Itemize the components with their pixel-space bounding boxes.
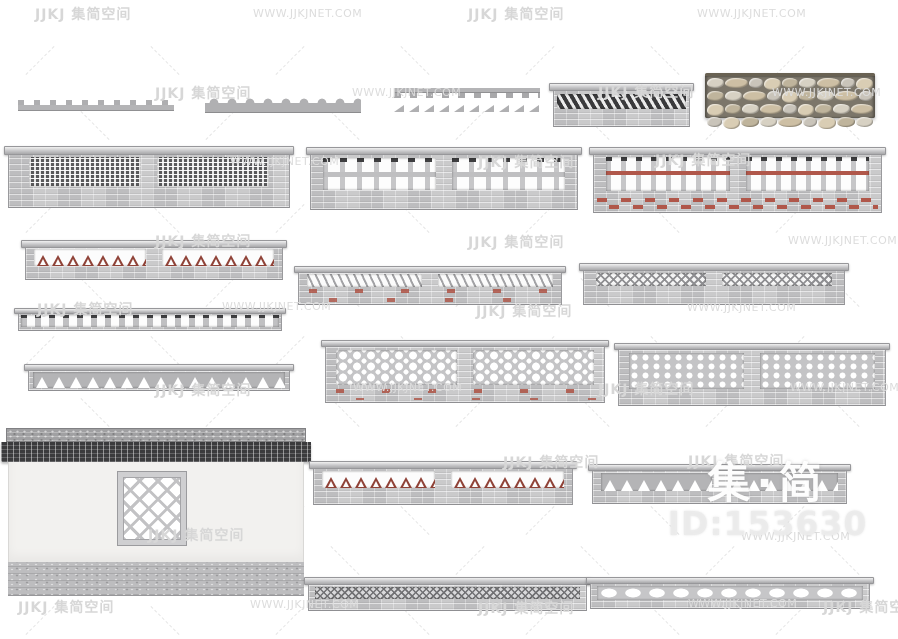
stone — [833, 104, 850, 114]
stone — [767, 91, 781, 101]
triangle-shape — [833, 480, 839, 491]
stone — [725, 91, 742, 101]
dashed-guide-line — [651, 506, 680, 535]
stone — [851, 104, 874, 114]
dashed-guide-line — [81, 278, 110, 307]
stone — [782, 78, 799, 88]
triangle-shape — [604, 480, 616, 491]
stone — [707, 91, 724, 101]
scroll-lattice-thin-railing — [308, 577, 587, 611]
red-chevron-panel — [162, 249, 274, 266]
railing-cap — [586, 577, 874, 584]
dashed-guide-line — [26, 204, 55, 233]
railing-body — [298, 273, 562, 305]
chevron-shape — [529, 477, 541, 488]
red-baluster-panel — [746, 157, 870, 191]
wall-body — [593, 155, 882, 213]
red-chevron-panel — [322, 471, 435, 488]
red-chevron-railing-small — [313, 461, 573, 505]
triangle-shape — [424, 105, 434, 112]
ridge-bar — [205, 103, 361, 113]
coping-bar — [18, 105, 174, 111]
railing-cap — [588, 464, 851, 471]
chevron-shape — [225, 255, 237, 266]
stone — [749, 78, 763, 88]
triangle-shape — [240, 377, 252, 388]
chevron-shape — [270, 255, 274, 266]
railing-cap — [24, 364, 294, 371]
dashed-guide-line — [151, 204, 180, 233]
railing-cap — [21, 240, 287, 248]
diagonal-slat-panel — [438, 274, 553, 287]
triangle-shape — [257, 377, 269, 388]
chevron-shape — [210, 255, 222, 266]
x-lattice-panel — [722, 273, 832, 286]
triangle-shape — [689, 480, 701, 491]
dashed-guide-line — [831, 546, 860, 575]
stone — [803, 117, 818, 127]
dashed-guide-line — [206, 278, 235, 307]
stone — [742, 104, 759, 114]
railing-body — [590, 584, 870, 609]
railing-body — [592, 471, 847, 504]
chevron-shape — [67, 255, 79, 266]
dot-grid-panel — [629, 353, 744, 389]
chevron-shape — [355, 477, 367, 488]
stone — [782, 91, 799, 103]
watermark-cn: JJKJ 集简空间 — [18, 597, 114, 617]
dashed-guide-line — [26, 46, 55, 75]
wall-cap — [321, 340, 609, 347]
oval-opening-band — [597, 586, 863, 600]
triangle-shape — [655, 480, 667, 491]
dashed-guide-line — [81, 111, 110, 140]
white-plaster-face — [8, 462, 304, 562]
chevron-shape — [544, 477, 556, 488]
triangle-shape — [206, 377, 218, 388]
triangle-shape — [172, 377, 184, 388]
red-accent-baluster-wall — [593, 147, 882, 213]
dashed-guide-line — [276, 204, 305, 233]
dashed-guide-line — [276, 46, 305, 75]
stone — [707, 104, 724, 116]
triangle-shape — [439, 105, 449, 112]
stone — [837, 117, 855, 127]
dashed-guide-line — [526, 46, 555, 75]
triangle-truss-railing — [28, 364, 290, 391]
triangle-shape — [748, 480, 760, 491]
dot-grid-lattice-wall — [618, 343, 886, 406]
triangle-shape — [672, 480, 684, 491]
triangle-shape — [409, 105, 419, 112]
scroll-lattice-band — [315, 587, 580, 599]
chevron-shape — [165, 255, 177, 266]
dashed-guide-line — [276, 336, 305, 365]
chevron-shape — [180, 255, 192, 266]
chevron-shape — [142, 255, 146, 266]
triangle-tile-row — [394, 104, 540, 112]
triangle-shape — [138, 377, 150, 388]
stone — [835, 91, 858, 101]
oval-opening-thin-railing — [590, 577, 870, 609]
triangle-shape — [484, 105, 494, 112]
stone — [856, 117, 874, 127]
diagonal-lattice-panel — [557, 94, 686, 109]
chevron-shape — [430, 477, 435, 488]
watermark-url: WWW.JJKJNET.COM — [253, 7, 362, 20]
wall-body — [310, 155, 578, 210]
diagonal-slat-railing-red-accents — [298, 266, 562, 305]
triangle-shape — [189, 377, 201, 388]
chevron-shape — [340, 477, 352, 488]
chevron-shape — [514, 477, 526, 488]
triangle-shape — [514, 105, 524, 112]
brick-base-band — [8, 562, 304, 596]
square-lattice-window — [118, 472, 186, 545]
stone — [859, 91, 873, 101]
chevron-shape — [195, 255, 207, 266]
triangle-shape — [274, 377, 285, 388]
slot-baluster-band — [21, 315, 279, 327]
stone — [798, 104, 815, 116]
watermark-url: WWW.JJKJNET.COM — [788, 234, 897, 247]
triangle-shape — [36, 377, 48, 388]
railing-cap — [549, 83, 694, 91]
wall-body — [8, 155, 290, 208]
triangle-shape — [223, 377, 235, 388]
dashed-guide-line — [151, 606, 180, 635]
dashed-guide-line — [776, 606, 805, 635]
dashed-guide-line — [456, 546, 485, 575]
triangle-shape — [529, 105, 539, 112]
railing-body — [308, 585, 587, 611]
triangle-shape — [765, 480, 777, 491]
stone-masonry — [705, 73, 875, 118]
dashed-guide-line — [581, 546, 610, 575]
triangle-shape — [706, 480, 712, 491]
white-triangle-railing — [592, 464, 847, 504]
triangle-shape — [469, 105, 479, 112]
rubble-stone-wall — [705, 73, 875, 118]
watermark-cn: JJKJ 集简空间 — [468, 232, 564, 252]
watermark-cn: JJKJ 集简空间 — [35, 4, 131, 24]
stone — [743, 91, 766, 101]
chevron-shape — [112, 255, 124, 266]
dentil-coping-strip — [18, 100, 174, 111]
dentil-strip-with-triangle-tiles — [394, 88, 540, 112]
red-chevron-panel — [34, 249, 146, 266]
railing-cap — [304, 577, 591, 585]
chevron-shape — [325, 477, 337, 488]
triangle-shape — [70, 377, 82, 388]
stone — [778, 117, 802, 127]
railing-cap — [579, 263, 849, 271]
stone — [760, 117, 778, 127]
stone — [841, 78, 855, 88]
cross-flower-grid-wall-red-base — [325, 340, 605, 403]
rect-grid-panel — [452, 158, 565, 190]
dentil-teeth — [394, 93, 540, 98]
cross-grid-panel — [336, 350, 457, 385]
scattered-red-bricks — [330, 389, 600, 400]
stone — [856, 78, 873, 90]
scattered-red-bricks — [303, 289, 557, 303]
chevron-shape — [499, 477, 511, 488]
railing-body — [583, 271, 845, 305]
dashed-guide-line — [456, 111, 485, 140]
diagonal-slat-panel — [307, 274, 422, 287]
railing-body — [313, 469, 573, 505]
wall-body — [325, 347, 605, 403]
cross-lattice-railing — [583, 263, 845, 305]
wall-cap — [589, 147, 886, 155]
chevron-shape — [370, 477, 382, 488]
perforated-lattice-panel — [29, 157, 141, 187]
triangle-shape — [799, 480, 811, 491]
chevron-shape — [454, 477, 466, 488]
triangle-shape — [454, 105, 464, 112]
railing-body — [28, 371, 290, 391]
dashed-guide-line — [526, 506, 555, 535]
triangle-shape — [104, 377, 116, 388]
dense-perforated-brick-wall — [8, 146, 290, 208]
white-triangle-panel — [601, 473, 712, 491]
brick-coping-band — [6, 428, 306, 442]
wave-ridge-coping-strip — [205, 95, 361, 113]
watermark-cn: JJKJ 集简空间 — [468, 4, 564, 24]
stone — [707, 78, 724, 88]
dashed-guide-line — [706, 546, 735, 575]
white-triangle-band — [33, 372, 285, 388]
triangle-shape — [816, 480, 828, 491]
dashed-guide-line — [276, 606, 305, 635]
red-chevron-panel — [451, 471, 564, 488]
chevron-shape — [469, 477, 481, 488]
stone — [707, 117, 722, 127]
chevron-shape — [82, 255, 94, 266]
red-meander-brick-band — [597, 197, 878, 210]
ridge-tile-bumps — [205, 95, 361, 103]
stone — [741, 117, 759, 127]
triangle-shape — [121, 377, 133, 388]
railing-body — [25, 248, 283, 280]
dashed-guide-line — [776, 46, 805, 75]
stone — [723, 117, 741, 129]
chevron-shape — [255, 255, 267, 266]
dark-tile-roof-band — [1, 442, 311, 462]
stone — [760, 104, 783, 114]
railing-cap — [309, 461, 577, 469]
chevron-shape — [415, 477, 427, 488]
triangle-shape — [499, 105, 509, 112]
dashed-guide-line — [206, 111, 235, 140]
chevron-shape — [37, 255, 49, 266]
red-chevron-railing — [25, 240, 283, 280]
stone — [725, 78, 748, 88]
railing-cap — [294, 266, 566, 273]
slotted-balustrade-strip — [18, 308, 282, 331]
wall-cap — [4, 146, 294, 155]
dashed-guide-line — [776, 506, 805, 535]
watermark-url: WWW.JJKJNET.COM — [741, 530, 850, 543]
stone — [818, 117, 836, 129]
railing-body — [553, 91, 690, 127]
triangle-shape — [621, 480, 633, 491]
dashed-guide-line — [206, 398, 235, 427]
dot-grid-panel — [760, 353, 875, 389]
red-baluster-panel — [606, 157, 730, 191]
perforated-lattice-panel — [157, 157, 269, 187]
diagonal-lattice-top-railing — [553, 83, 690, 127]
railing-body — [18, 314, 282, 331]
model-id-text: ID:153630 — [660, 507, 875, 542]
chevron-shape — [97, 255, 109, 266]
watermark-url: WWW.JJKJNET.COM — [697, 7, 806, 20]
chevron-shape — [240, 255, 252, 266]
wall-cap — [614, 343, 890, 350]
dashed-guide-line — [331, 546, 360, 575]
dashed-guide-line — [401, 46, 430, 75]
triangle-shape — [731, 480, 743, 491]
white-triangle-panel — [728, 473, 839, 491]
stone — [764, 78, 781, 90]
model-preview-sheet: JJKJ 集简空间WWW.JJKJNET.COMJJKJ 集简空间WWW.JJK… — [0, 0, 898, 639]
stone — [725, 104, 742, 114]
stone — [799, 91, 816, 101]
triangle-shape — [53, 377, 65, 388]
chevron-shape — [484, 477, 496, 488]
triangle-shape — [638, 480, 650, 491]
stone — [815, 104, 832, 114]
dashed-guide-line — [651, 46, 680, 75]
wall-cap — [306, 147, 582, 155]
rectangular-grid-baluster-wall — [310, 147, 578, 210]
dashed-guide-line — [401, 506, 430, 535]
chevron-shape — [52, 255, 64, 266]
dashed-guide-line — [81, 398, 110, 427]
stone — [783, 104, 797, 114]
plaster-courtyard-wall — [8, 428, 304, 596]
chevron-shape — [400, 477, 412, 488]
stone — [817, 78, 840, 88]
cross-grid-panel — [473, 350, 594, 385]
stone — [817, 91, 834, 101]
dashed-guide-line — [26, 336, 55, 365]
dashed-guide-line — [151, 46, 180, 75]
chevron-shape — [127, 255, 139, 266]
dashed-guide-line — [151, 336, 180, 365]
x-lattice-panel — [596, 273, 706, 286]
rect-grid-panel — [323, 158, 436, 190]
triangle-shape — [87, 377, 99, 388]
triangle-shape — [782, 480, 794, 491]
chevron-shape — [559, 477, 564, 488]
triangle-shape — [155, 377, 167, 388]
triangle-shape — [394, 105, 404, 112]
dashed-guide-line — [26, 606, 55, 635]
wall-body — [618, 350, 886, 406]
dashed-guide-line — [331, 111, 360, 140]
chevron-shape — [385, 477, 397, 488]
stone — [799, 78, 816, 88]
dashed-guide-line — [651, 606, 680, 635]
